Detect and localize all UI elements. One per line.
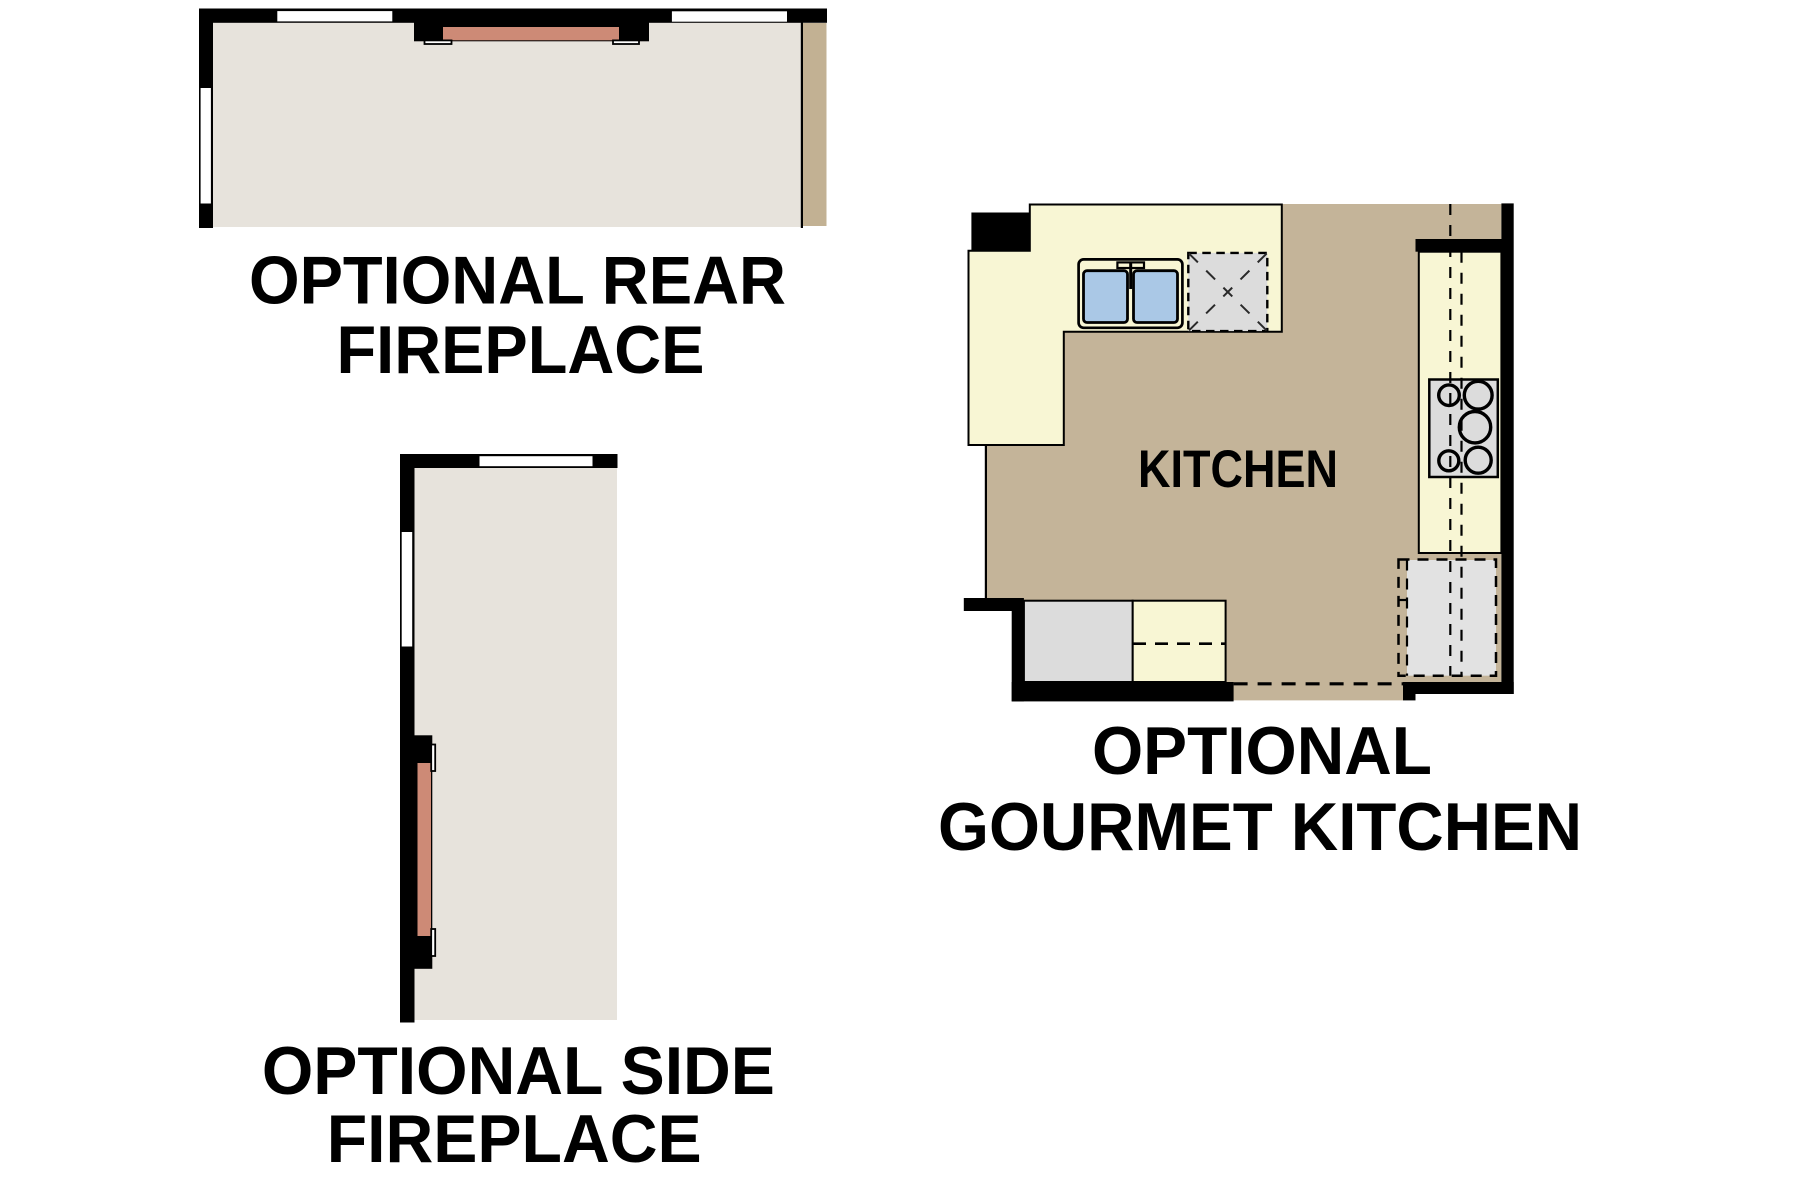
svg-text:OPTIONAL SIDE: OPTIONAL SIDE — [262, 1033, 775, 1109]
svg-text:OPTIONAL REAR: OPTIONAL REAR — [249, 242, 786, 318]
svg-text:OPTIONAL: OPTIONAL — [1092, 713, 1432, 789]
svg-text:FIREPLACE: FIREPLACE — [337, 312, 705, 388]
svg-text:GOURMET KITCHEN: GOURMET KITCHEN — [938, 789, 1582, 865]
svg-text:FIREPLACE: FIREPLACE — [327, 1101, 702, 1177]
svg-text:KITCHEN: KITCHEN — [1138, 440, 1338, 499]
